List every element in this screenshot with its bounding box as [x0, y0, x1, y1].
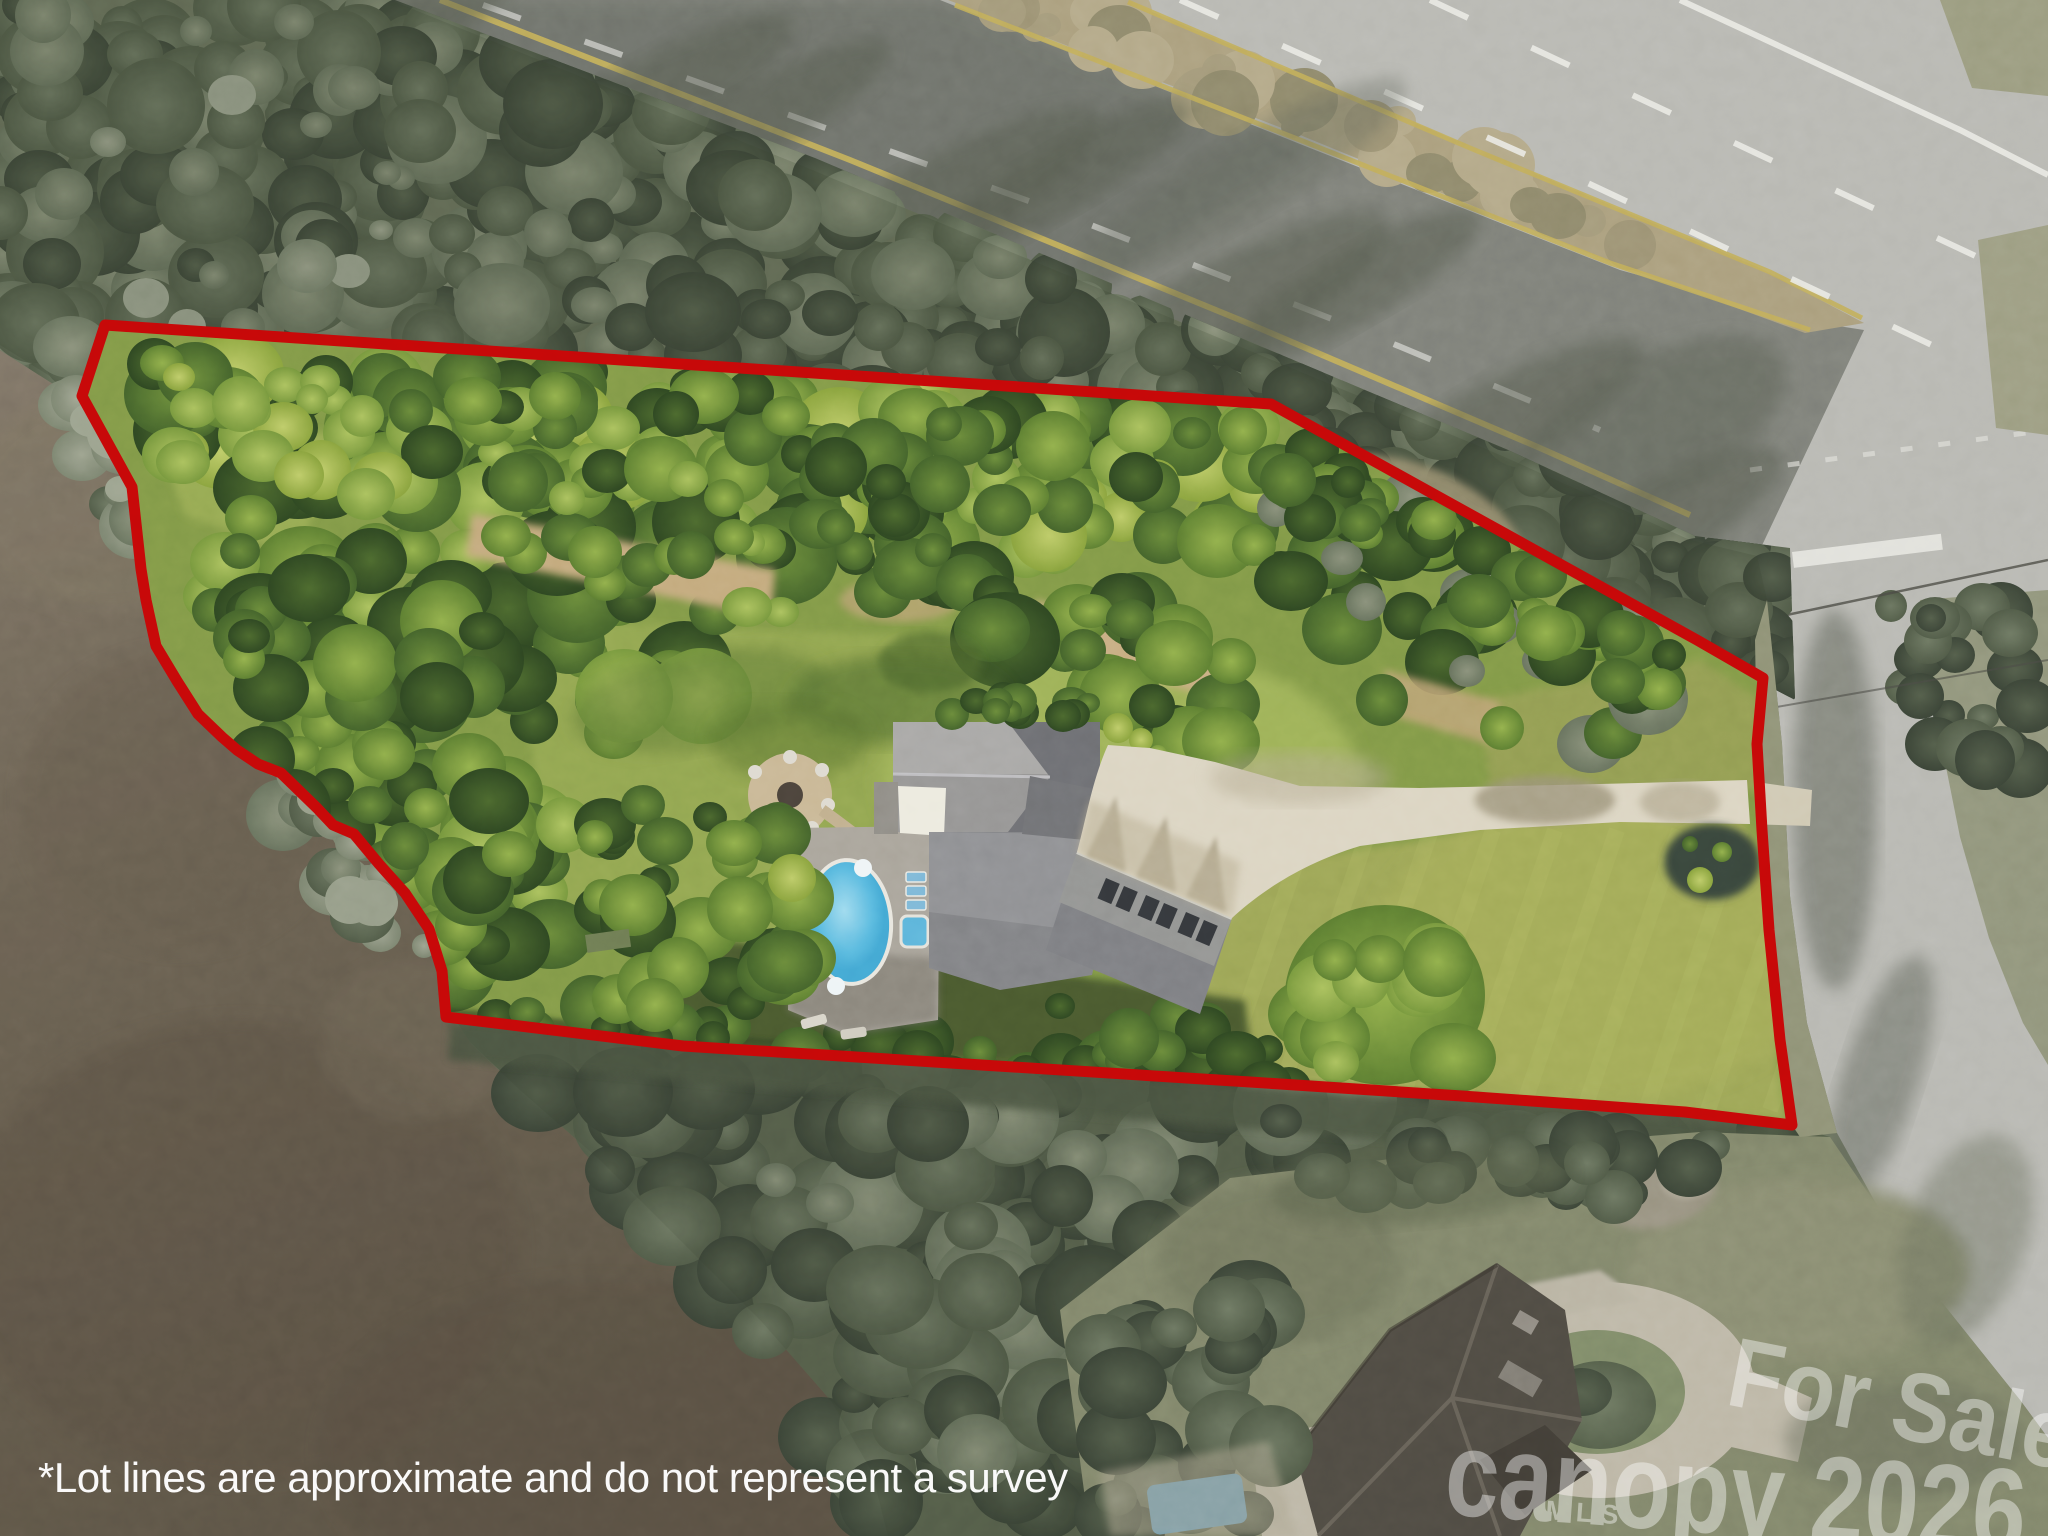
- svg-text:*Lot lines are approximate and: *Lot lines are approximate and do not re…: [38, 1454, 1068, 1501]
- svg-text:MLS: MLS: [1545, 1495, 1628, 1531]
